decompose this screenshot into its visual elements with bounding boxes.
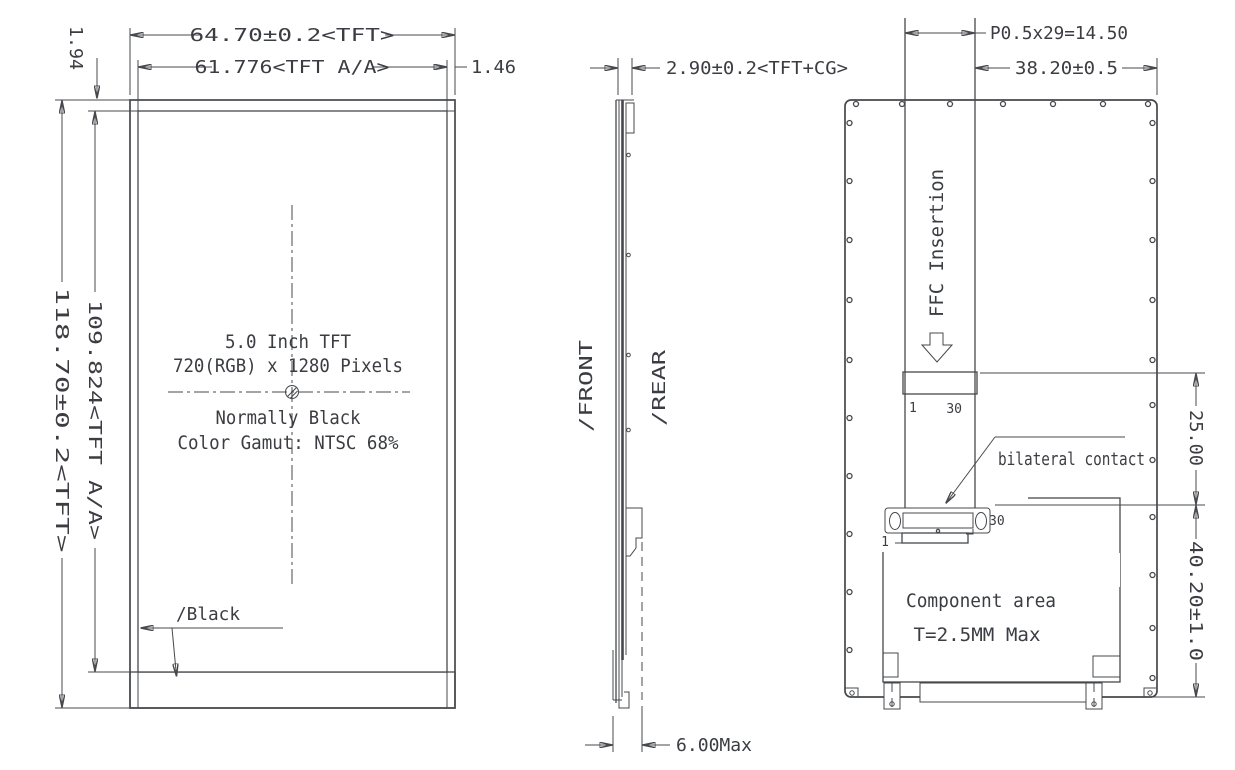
dim-width-aa: 61.776<TFT A/A> [195, 57, 390, 78]
note-gamut: Color Gamut: NTSC 68% [178, 432, 400, 454]
pin30-label-bottom: 30 [989, 514, 1005, 529]
label-rear-surface: /REAR [649, 350, 670, 426]
note-resolution: 720(RGB) x 1280 Pixels [173, 355, 403, 377]
dim-top-border: 1.94 [65, 26, 86, 70]
dim-max-thickness: 6.00Max [676, 735, 752, 756]
cover-glass-edge [626, 103, 634, 133]
dim-ffc-offset: 38.20±0.5 [1015, 58, 1118, 79]
dim-width-tft: 64.70±0.2<TFT> [190, 25, 395, 46]
ffc-insertion-label: FFC Insertion [926, 169, 948, 317]
dim-height-tft: 118.70±0.2<TFT> [51, 288, 72, 553]
bilateral-contact-label: bilateral contact [998, 449, 1145, 470]
side-view: /FRONT /REAR 2.90±0.2<TFT+CG> 6.00Max [576, 58, 848, 756]
component-thickness-label: T=2.5MM Max [914, 624, 1041, 646]
pin1-label-top: 1 [909, 401, 917, 416]
dim-insertion: 25.00 [1185, 410, 1206, 466]
pin1-label-bottom: 1 [881, 535, 889, 550]
note-mode: Normally Black [216, 407, 361, 429]
black-label: /Black [176, 604, 240, 625]
dim-pitch: P0.5x29=14.50 [990, 23, 1128, 44]
front-view: 5.0 Inch TFT 720(RGB) x 1280 Pixels Norm… [51, 25, 516, 708]
pin30-label-top: 30 [946, 402, 962, 417]
dim-thickness: 2.90±0.2<TFT+CG> [666, 58, 848, 79]
side-connector-profile [626, 508, 642, 556]
outline-drawing-svg: 5.0 Inch TFT 720(RGB) x 1280 Pixels Norm… [0, 0, 1235, 770]
dim-component: 40.20±1.0 [1185, 541, 1206, 661]
drawing-canvas: 5.0 Inch TFT 720(RGB) x 1280 Pixels Norm… [0, 0, 1235, 770]
side-dimensions: 2.90±0.2<TFT+CG> 6.00Max [585, 58, 848, 756]
side-profile [613, 100, 642, 708]
label-front-surface: /FRONT [576, 340, 597, 432]
note-size: 5.0 Inch TFT [225, 331, 351, 353]
component-area-label: Component area [906, 590, 1056, 612]
dim-right-border: 1.46 [471, 57, 516, 78]
rear-view: Component area T=2.5MM Max 1 30 FFC Inse… [845, 18, 1206, 709]
dim-height-aa: 109.824<TFT A/A> [84, 300, 105, 540]
